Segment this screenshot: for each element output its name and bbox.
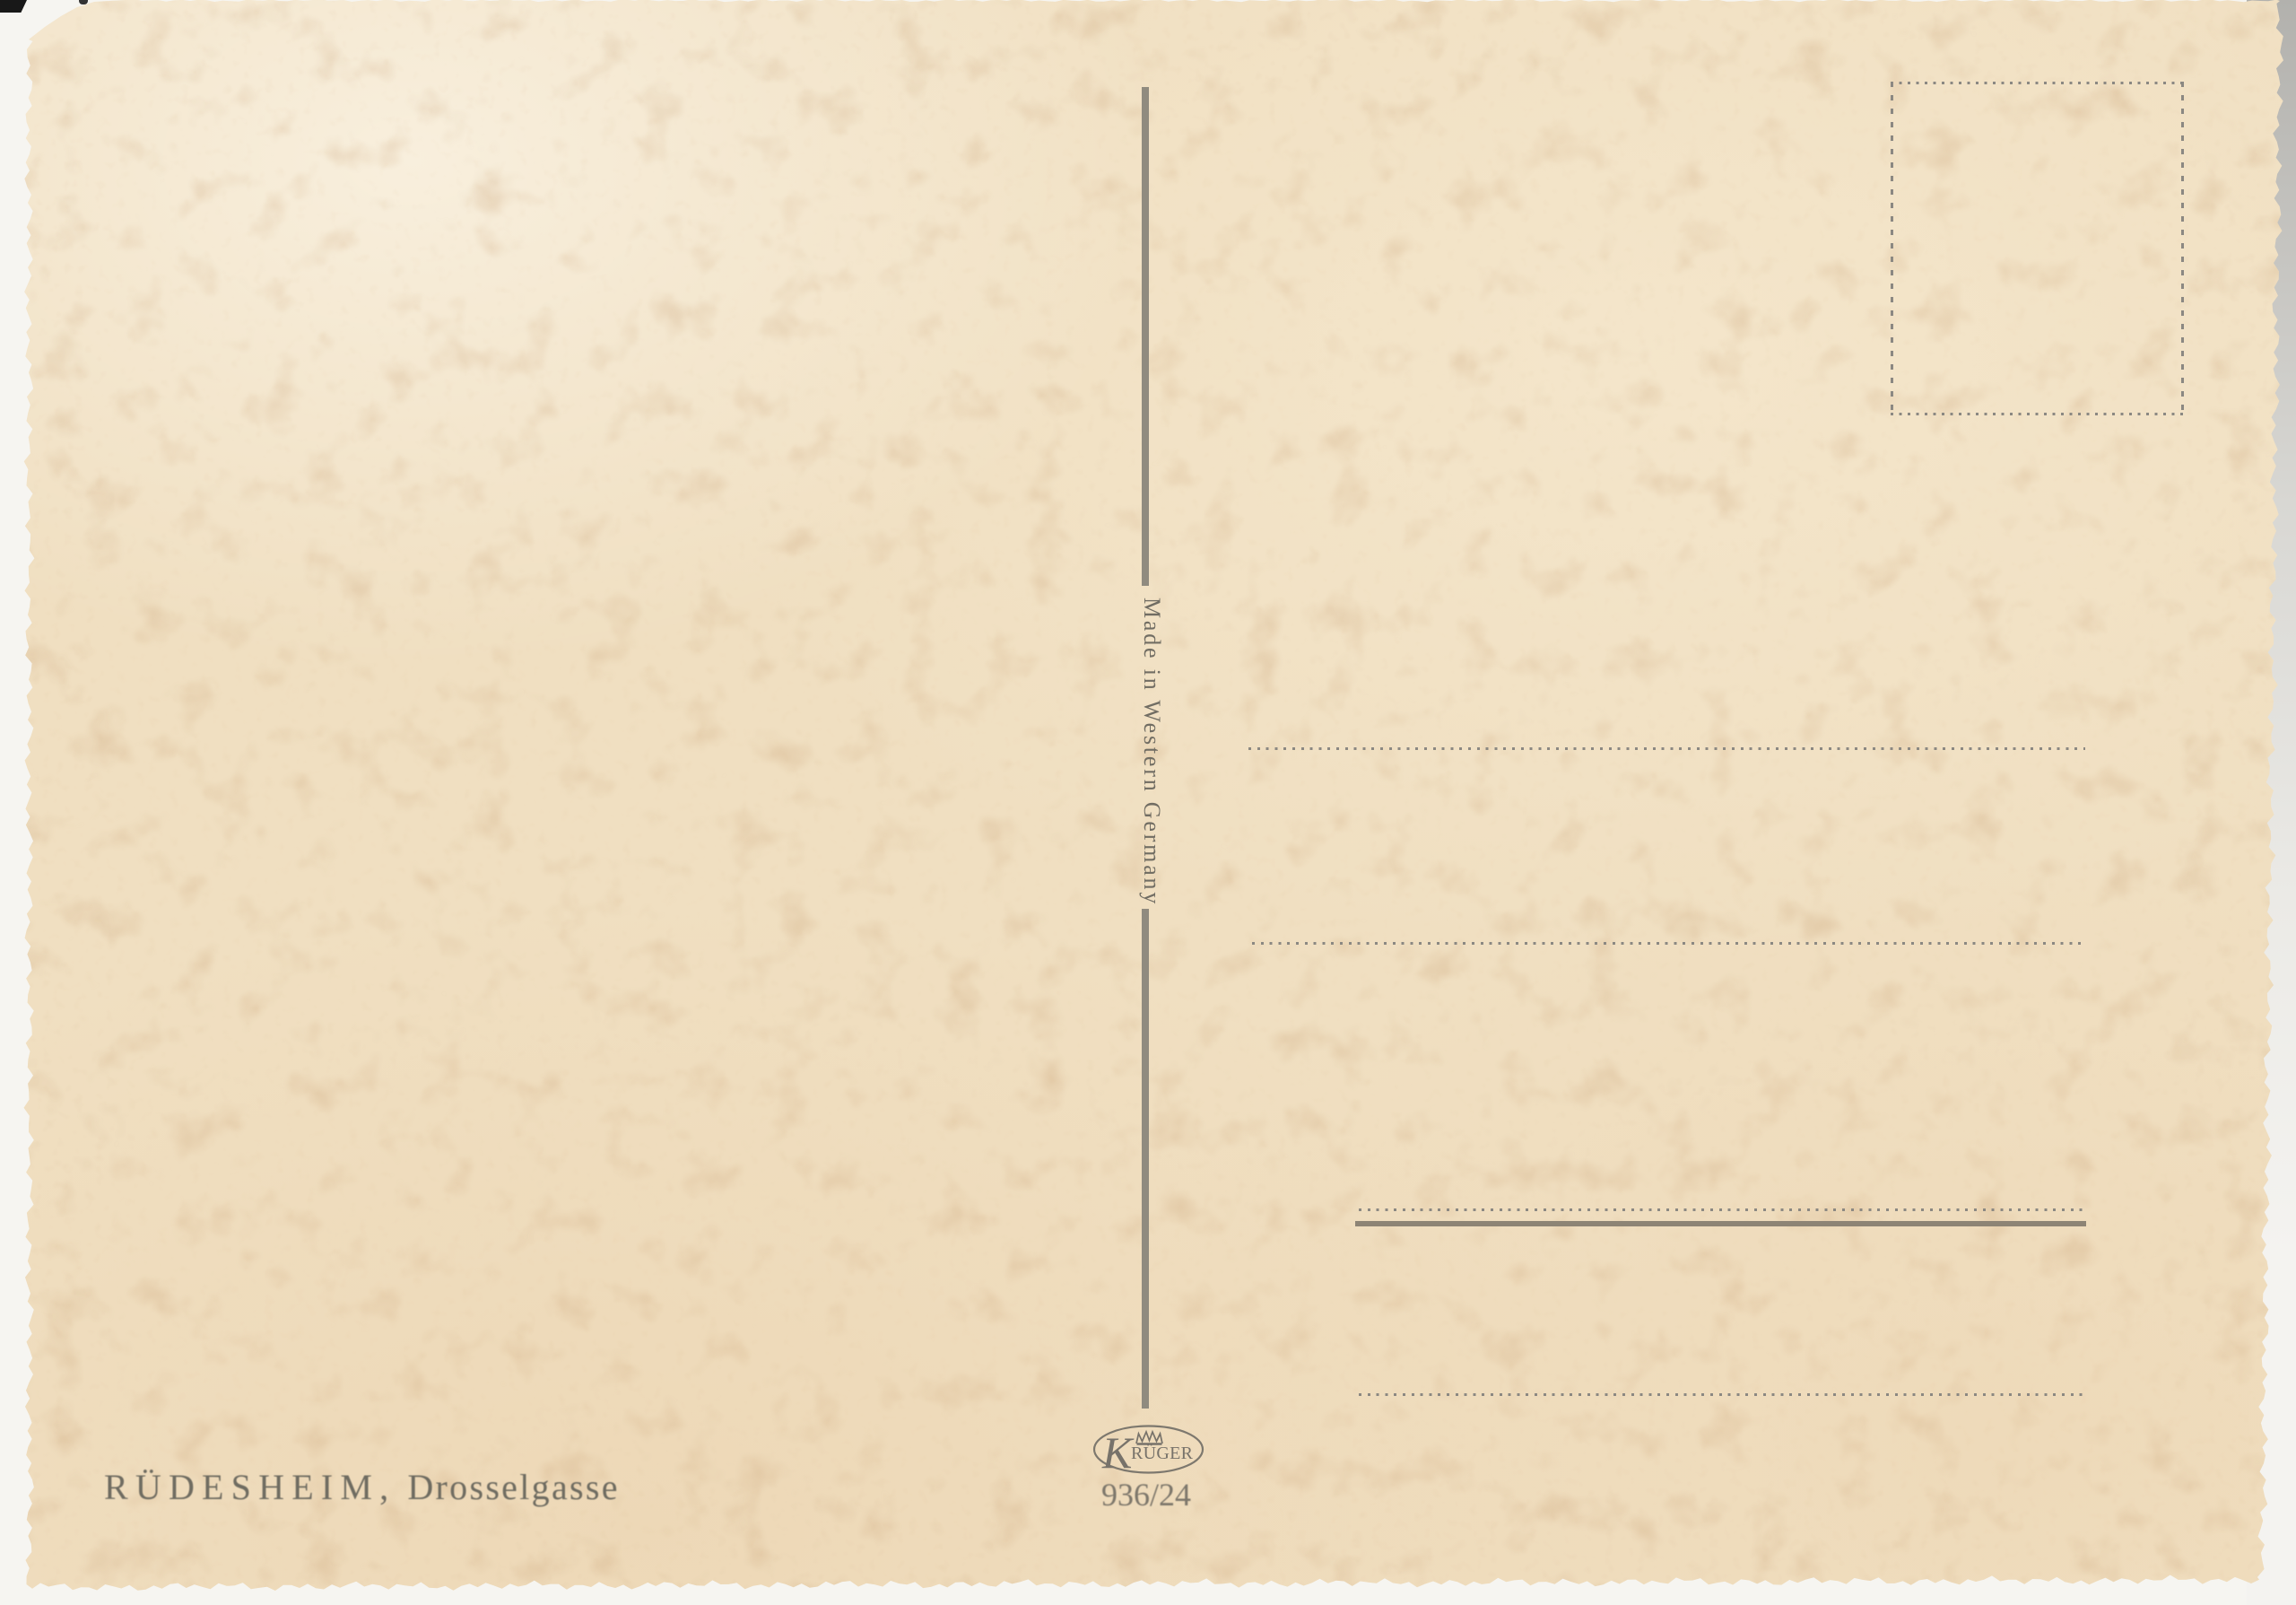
svg-text:K: K — [1101, 1427, 1135, 1477]
svg-text:RÜGER: RÜGER — [1131, 1443, 1194, 1463]
